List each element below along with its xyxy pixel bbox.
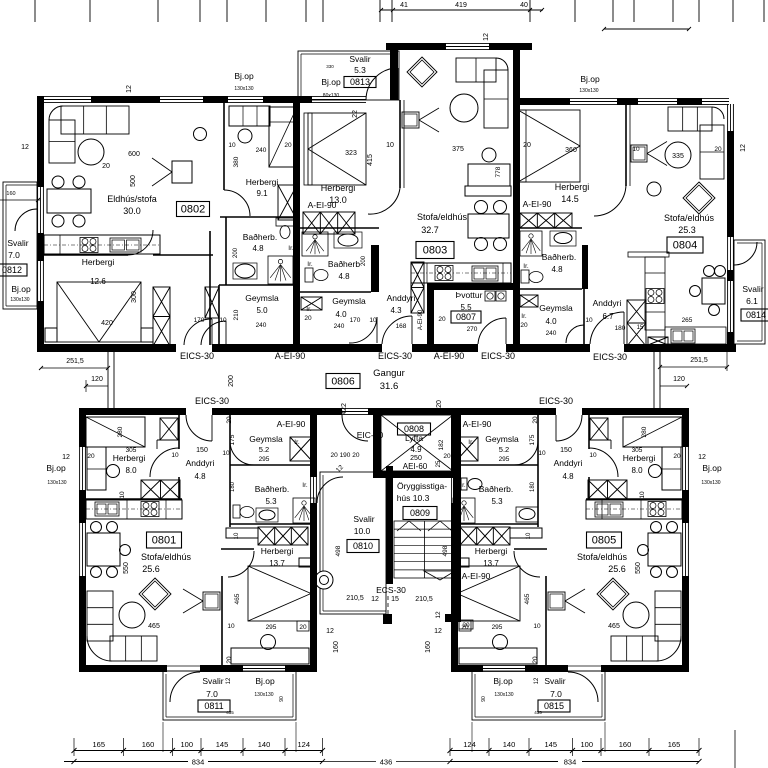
svg-text:150: 150 <box>560 447 572 454</box>
svg-text:Stofa/eldhús: Stofa/eldhús <box>141 552 192 562</box>
svg-text:A-EI-90: A-EI-90 <box>308 200 337 210</box>
svg-text:210: 210 <box>233 309 240 320</box>
svg-text:Bj.op: Bj.op <box>493 676 513 686</box>
svg-text:EICS-30: EICS-30 <box>539 396 573 406</box>
svg-text:12: 12 <box>435 611 442 619</box>
svg-text:498: 498 <box>335 545 342 556</box>
svg-text:10: 10 <box>222 450 230 457</box>
svg-text:A-EI-90: A-EI-90 <box>277 419 306 429</box>
svg-text:380: 380 <box>233 156 240 167</box>
svg-text:A-EI-90: A-EI-90 <box>434 351 465 361</box>
svg-text:0803: 0803 <box>423 245 447 257</box>
svg-text:4.8: 4.8 <box>252 244 264 253</box>
svg-text:Herbergi: Herbergi <box>113 453 146 463</box>
svg-text:Öryggisstiga-: Öryggisstiga- <box>397 481 447 491</box>
svg-text:300: 300 <box>131 291 138 303</box>
svg-text:200: 200 <box>228 375 235 387</box>
svg-text:Gangur: Gangur <box>373 368 405 379</box>
svg-text:5.3: 5.3 <box>491 497 503 506</box>
svg-text:20: 20 <box>226 656 233 664</box>
svg-text:160: 160 <box>425 641 432 653</box>
svg-text:Herbergi: Herbergi <box>246 177 279 187</box>
svg-text:130x130: 130x130 <box>701 480 720 486</box>
svg-text:hús 10.3: hús 10.3 <box>397 493 430 503</box>
svg-text:40: 40 <box>520 2 528 9</box>
svg-text:200: 200 <box>361 255 367 266</box>
svg-text:124: 124 <box>463 740 476 749</box>
svg-text:182: 182 <box>438 439 445 450</box>
svg-text:240: 240 <box>256 322 267 329</box>
svg-text:20: 20 <box>87 453 95 460</box>
svg-text:165: 165 <box>668 740 681 749</box>
svg-text:5.0: 5.0 <box>256 306 268 315</box>
svg-text:145: 145 <box>544 740 557 749</box>
svg-text:30.0: 30.0 <box>123 206 141 216</box>
svg-text:10: 10 <box>632 146 640 153</box>
svg-text:12: 12 <box>326 628 334 635</box>
svg-text:0802: 0802 <box>181 204 205 216</box>
svg-text:465: 465 <box>608 623 620 630</box>
svg-text:5.2: 5.2 <box>499 445 509 454</box>
svg-text:10: 10 <box>171 452 179 459</box>
svg-text:15: 15 <box>391 596 399 603</box>
svg-text:130x130: 130x130 <box>254 692 273 698</box>
svg-text:25.6: 25.6 <box>142 564 160 574</box>
svg-text:Ir.: Ir. <box>302 482 308 489</box>
svg-text:0809: 0809 <box>410 508 430 518</box>
svg-text:20: 20 <box>284 142 292 149</box>
svg-text:Bj.op: Bj.op <box>580 74 600 84</box>
svg-text:12: 12 <box>126 85 133 93</box>
svg-text:22: 22 <box>352 110 359 118</box>
svg-text:A-EI-90: A-EI-90 <box>275 351 306 361</box>
svg-text:12: 12 <box>62 454 70 461</box>
svg-text:240: 240 <box>334 323 345 330</box>
svg-text:335: 335 <box>672 153 684 160</box>
svg-text:120: 120 <box>673 376 685 383</box>
svg-text:20: 20 <box>714 146 722 153</box>
svg-text:100: 100 <box>180 740 193 749</box>
svg-text:130x130: 130x130 <box>494 692 513 698</box>
svg-text:10: 10 <box>119 491 126 499</box>
svg-text:20: 20 <box>304 315 312 322</box>
svg-text:Stofa/eldhús: Stofa/eldhús <box>664 213 715 223</box>
svg-text:Baðherb.: Baðherb. <box>479 484 514 494</box>
svg-text:EICS-30: EICS-30 <box>195 396 229 406</box>
svg-text:EICS-30: EICS-30 <box>378 351 412 361</box>
svg-text:130x130: 130x130 <box>10 297 29 303</box>
svg-text:10: 10 <box>533 623 541 630</box>
svg-text:120: 120 <box>91 376 103 383</box>
svg-text:0811: 0811 <box>204 701 223 711</box>
svg-text:270: 270 <box>467 326 478 333</box>
svg-text:Bj.op: Bj.op <box>321 77 341 87</box>
svg-text:Bj.op: Bj.op <box>234 71 254 81</box>
svg-text:250: 250 <box>410 455 422 462</box>
svg-text:Geymsla: Geymsla <box>485 434 519 444</box>
svg-text:0814: 0814 <box>746 310 766 320</box>
svg-text:7.0: 7.0 <box>206 689 218 699</box>
svg-text:280: 280 <box>117 426 124 437</box>
svg-text:550: 550 <box>635 562 642 574</box>
svg-text:12: 12 <box>226 677 232 684</box>
svg-text:415: 415 <box>367 154 374 166</box>
svg-text:Baðherb: Baðherb <box>328 259 360 269</box>
svg-text:4.8: 4.8 <box>338 272 350 281</box>
svg-text:14.5: 14.5 <box>561 194 579 204</box>
svg-text:0801: 0801 <box>152 535 176 547</box>
svg-text:435: 435 <box>226 710 234 715</box>
svg-text:419: 419 <box>455 2 467 9</box>
svg-text:90: 90 <box>279 696 285 702</box>
svg-text:Bj.op: Bj.op <box>11 284 31 294</box>
svg-text:12: 12 <box>534 677 540 684</box>
svg-text:4.9: 4.9 <box>410 445 422 454</box>
svg-text:140: 140 <box>503 740 516 749</box>
svg-text:375: 375 <box>452 146 464 153</box>
svg-text:20: 20 <box>102 163 110 170</box>
svg-text:A-EI-90: A-EI-90 <box>462 571 491 581</box>
svg-text:10: 10 <box>228 142 236 149</box>
svg-text:Geymsla: Geymsla <box>249 434 283 444</box>
svg-text:10: 10 <box>538 450 546 457</box>
svg-text:Herbergi: Herbergi <box>555 182 590 192</box>
svg-text:160: 160 <box>142 740 155 749</box>
svg-text:Þvottur: Þvottur <box>456 290 483 300</box>
svg-text:Baðherb.: Baðherb. <box>255 484 290 494</box>
svg-text:4.8: 4.8 <box>194 472 206 481</box>
svg-text:Stofa/eldhús: Stofa/eldhús <box>577 552 628 562</box>
svg-text:EIC-30: EIC-30 <box>357 430 384 440</box>
svg-text:12: 12 <box>740 144 747 152</box>
svg-text:Baðherb.: Baðherb. <box>243 232 278 242</box>
svg-text:295: 295 <box>259 456 270 463</box>
svg-text:20: 20 <box>438 316 446 323</box>
svg-text:295: 295 <box>266 624 277 631</box>
svg-text:10: 10 <box>526 532 532 539</box>
svg-text:10: 10 <box>386 142 394 149</box>
svg-text:323: 323 <box>345 150 357 157</box>
svg-text:834: 834 <box>564 758 577 767</box>
svg-text:Eldhús/stofa: Eldhús/stofa <box>107 194 157 204</box>
svg-text:170: 170 <box>194 317 205 324</box>
svg-text:7.0: 7.0 <box>550 689 562 699</box>
svg-text:25: 25 <box>436 460 442 467</box>
svg-text:130x130: 130x130 <box>234 86 253 92</box>
svg-text:240: 240 <box>546 330 557 337</box>
svg-text:360: 360 <box>565 147 577 154</box>
svg-text:Bj.op: Bj.op <box>702 463 722 473</box>
svg-text:0810: 0810 <box>353 541 373 551</box>
svg-text:10.0: 10.0 <box>354 526 371 536</box>
svg-text:13.7: 13.7 <box>269 559 285 568</box>
svg-text:170: 170 <box>350 317 361 324</box>
svg-text:31.6: 31.6 <box>380 381 399 392</box>
svg-text:Geymsla: Geymsla <box>245 293 279 303</box>
svg-text:Ir.: Ir. <box>523 263 529 270</box>
svg-text:180: 180 <box>530 481 536 492</box>
svg-text:436: 436 <box>380 758 393 767</box>
svg-text:Svalir: Svalir <box>349 54 370 64</box>
svg-text:130x130: 130x130 <box>579 88 598 94</box>
svg-text:5.2: 5.2 <box>259 445 269 454</box>
svg-text:Bj.op: Bj.op <box>255 676 275 686</box>
svg-text:Herbergi: Herbergi <box>475 546 508 556</box>
svg-text:Ir.: Ir. <box>288 245 294 252</box>
svg-text:EICS-30: EICS-30 <box>481 351 515 361</box>
svg-text:265: 265 <box>682 317 693 324</box>
svg-text:240: 240 <box>256 147 267 154</box>
svg-text:20: 20 <box>523 142 531 149</box>
svg-text:41: 41 <box>400 2 408 9</box>
svg-text:A-EI-90: A-EI-90 <box>463 419 492 429</box>
svg-text:500: 500 <box>130 175 137 187</box>
svg-text:124: 124 <box>297 740 310 749</box>
svg-text:32.7: 32.7 <box>421 225 439 235</box>
svg-text:180: 180 <box>230 481 236 492</box>
svg-text:EICS-30: EICS-30 <box>593 352 627 362</box>
svg-text:20: 20 <box>520 322 528 329</box>
svg-text:Anddyri: Anddyri <box>186 458 215 468</box>
svg-text:20: 20 <box>461 624 469 631</box>
svg-text:210,5: 210,5 <box>415 596 433 603</box>
svg-text:550: 550 <box>123 562 130 574</box>
svg-text:6.7: 6.7 <box>602 312 614 321</box>
svg-text:4.8: 4.8 <box>562 472 574 481</box>
svg-text:Bj.op: Bj.op <box>46 463 66 473</box>
svg-text:4.0: 4.0 <box>335 310 347 319</box>
svg-text:200: 200 <box>233 247 239 258</box>
svg-text:10: 10 <box>585 317 593 324</box>
svg-text:0806: 0806 <box>331 376 355 388</box>
svg-text:10: 10 <box>227 623 235 630</box>
svg-text:251,5: 251,5 <box>690 357 708 364</box>
svg-text:8.0: 8.0 <box>125 466 137 475</box>
svg-text:10: 10 <box>589 452 597 459</box>
svg-text:Herbergi: Herbergi <box>261 546 294 556</box>
svg-text:330: 330 <box>326 64 334 69</box>
svg-text:280: 280 <box>641 426 648 437</box>
svg-text:175: 175 <box>529 434 536 445</box>
svg-text:10: 10 <box>234 532 240 539</box>
svg-text:Geymsla: Geymsla <box>332 296 366 306</box>
svg-text:20: 20 <box>299 624 307 631</box>
svg-text:Lyfta: Lyfta <box>405 433 423 443</box>
svg-text:12: 12 <box>434 628 442 635</box>
svg-text:140: 140 <box>258 740 271 749</box>
svg-text:25.3: 25.3 <box>678 225 696 235</box>
svg-text:778: 778 <box>495 166 502 177</box>
svg-text:130x130: 130x130 <box>47 480 66 486</box>
svg-text:20: 20 <box>532 656 539 664</box>
svg-text:4.8: 4.8 <box>551 265 563 274</box>
svg-text:10: 10 <box>639 491 646 499</box>
svg-text:420: 420 <box>101 320 113 327</box>
svg-text:20 190 20: 20 190 20 <box>331 452 360 459</box>
svg-text:Geymsla: Geymsla <box>539 303 573 313</box>
svg-text:80x130: 80x130 <box>323 93 340 99</box>
svg-text:20: 20 <box>443 453 451 460</box>
svg-text:Herbergi: Herbergi <box>82 257 115 267</box>
svg-text:600: 600 <box>128 151 140 158</box>
svg-text:Anddyri: Anddyri <box>554 458 583 468</box>
svg-text:145: 145 <box>216 740 229 749</box>
svg-text:Anddyri: Anddyri <box>593 298 622 308</box>
svg-text:Ir.: Ir. <box>307 261 313 268</box>
svg-text:13.7: 13.7 <box>483 559 499 568</box>
svg-text:160: 160 <box>619 740 632 749</box>
svg-text:12: 12 <box>371 596 379 603</box>
svg-text:6.1: 6.1 <box>746 296 758 306</box>
svg-text:Svalir: Svalir <box>202 676 223 686</box>
svg-text:8.0: 8.0 <box>631 466 643 475</box>
svg-text:4.3: 4.3 <box>390 306 402 315</box>
svg-text:0815: 0815 <box>544 701 564 711</box>
svg-text:422: 422 <box>341 403 348 415</box>
svg-text:Svalir: Svalir <box>7 238 28 248</box>
svg-text:Baðherb.: Baðherb. <box>542 252 577 262</box>
svg-text:160: 160 <box>6 191 15 197</box>
svg-text:EICS-30: EICS-30 <box>180 351 214 361</box>
svg-text:25.6: 25.6 <box>608 564 626 574</box>
svg-text:295: 295 <box>492 624 503 631</box>
svg-text:7.0: 7.0 <box>8 250 20 260</box>
svg-text:251,5: 251,5 <box>66 358 84 365</box>
svg-text:0805: 0805 <box>592 535 616 547</box>
svg-text:ECS-30: ECS-30 <box>376 585 406 595</box>
svg-text:0812: 0812 <box>2 265 22 275</box>
svg-text:0807: 0807 <box>456 312 476 322</box>
svg-text:150: 150 <box>196 447 208 454</box>
svg-text:0813: 0813 <box>350 77 370 87</box>
svg-text:Ir.: Ir. <box>521 313 527 320</box>
svg-text:12: 12 <box>483 33 490 41</box>
svg-text:100: 100 <box>580 740 593 749</box>
svg-text:0804: 0804 <box>673 240 697 252</box>
svg-text:20: 20 <box>673 453 681 460</box>
svg-text:Ir.: Ir. <box>306 306 312 313</box>
svg-text:210,5: 210,5 <box>346 595 364 602</box>
svg-text:168: 168 <box>396 323 407 330</box>
svg-text:12: 12 <box>21 144 29 151</box>
svg-text:498: 498 <box>442 545 449 556</box>
svg-text:Herbergi: Herbergi <box>623 453 656 463</box>
svg-text:165: 165 <box>92 740 105 749</box>
svg-text:435: 435 <box>534 710 542 715</box>
svg-text:160: 160 <box>333 641 340 653</box>
svg-text:A-EI-90: A-EI-90 <box>418 309 424 330</box>
svg-text:Svalir: Svalir <box>742 284 763 294</box>
svg-text:Stofa/eldhús: Stofa/eldhús <box>417 212 468 222</box>
svg-text:834: 834 <box>192 758 205 767</box>
svg-text:Svalir: Svalir <box>544 676 565 686</box>
svg-text:465: 465 <box>148 623 160 630</box>
svg-text:9.1: 9.1 <box>256 189 268 198</box>
svg-text:90: 90 <box>481 696 487 702</box>
svg-text:12.6: 12.6 <box>90 277 106 286</box>
svg-text:20: 20 <box>436 400 443 408</box>
svg-text:AEI-60: AEI-60 <box>403 462 428 471</box>
svg-text:12: 12 <box>698 454 706 461</box>
svg-text:Herbergi: Herbergi <box>321 183 356 193</box>
svg-text:465: 465 <box>524 593 531 604</box>
svg-text:5.3: 5.3 <box>354 65 366 75</box>
svg-text:4.0: 4.0 <box>545 317 557 326</box>
svg-text:295: 295 <box>499 456 510 463</box>
svg-text:A-EI-90: A-EI-90 <box>523 199 552 209</box>
svg-text:Svalir: Svalir <box>353 514 374 524</box>
svg-text:465: 465 <box>234 593 241 604</box>
svg-text:5.3: 5.3 <box>265 497 277 506</box>
